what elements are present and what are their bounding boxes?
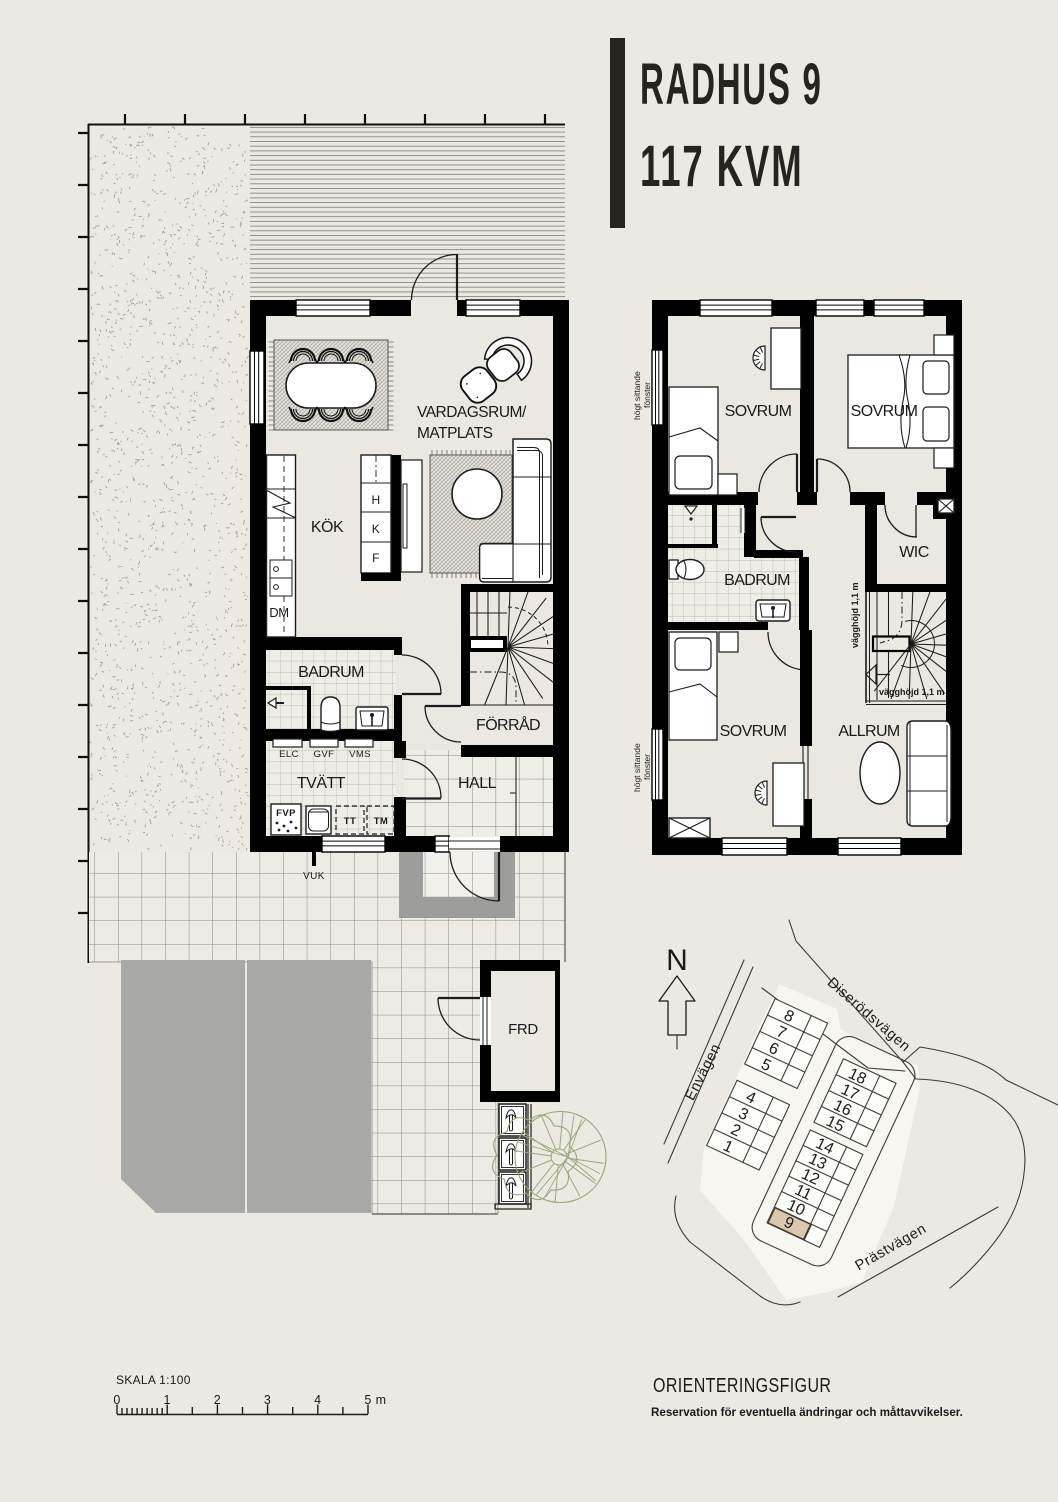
svg-text:SOVRUM: SOVRUM — [851, 403, 918, 420]
svg-text:TT: TT — [344, 816, 356, 827]
svg-text:KÖK: KÖK — [311, 518, 344, 536]
svg-text:RADHUS 9: RADHUS 9 — [640, 52, 823, 117]
svg-text:117 KVM: 117 KVM — [640, 135, 804, 200]
svg-text:SOVRUM: SOVRUM — [720, 723, 787, 740]
svg-text:högt sittande: högt sittande — [632, 371, 642, 420]
svg-text:VARDAGSRUM/: VARDAGSRUM/ — [417, 404, 527, 421]
svg-text:SKALA 1:100: SKALA 1:100 — [116, 1373, 191, 1387]
svg-text:FÖRRÅD: FÖRRÅD — [476, 715, 540, 734]
svg-text:TM: TM — [374, 816, 389, 827]
svg-text:VUK: VUK — [303, 871, 325, 882]
svg-text:ELC: ELC — [279, 749, 299, 760]
svg-text:vägghöjd 1,1 m: vägghöjd 1,1 m — [879, 687, 945, 697]
svg-text:H: H — [371, 493, 380, 507]
svg-text:BADRUM: BADRUM — [724, 572, 790, 589]
svg-text:BADRUM: BADRUM — [298, 664, 364, 681]
svg-text:fönster: fönster — [642, 754, 652, 780]
svg-text:K: K — [372, 522, 380, 536]
svg-text:N: N — [666, 944, 688, 977]
svg-text:WIC: WIC — [899, 544, 929, 561]
svg-text:vägghöjd 1,1 m: vägghöjd 1,1 m — [850, 582, 860, 648]
svg-text:VMS: VMS — [349, 749, 371, 760]
svg-text:MATPLATS: MATPLATS — [417, 425, 493, 442]
svg-text:ALLRUM: ALLRUM — [838, 723, 900, 740]
svg-text:DM: DM — [269, 605, 288, 620]
svg-text:F: F — [372, 551, 380, 565]
svg-text:FRD: FRD — [508, 1021, 538, 1038]
svg-text:ORIENTERINGSFIGUR: ORIENTERINGSFIGUR — [653, 1374, 831, 1396]
svg-text:högt sittande: högt sittande — [632, 743, 642, 792]
svg-text:SOVRUM: SOVRUM — [725, 403, 792, 420]
svg-text:Reservation för eventuella änd: Reservation för eventuella ändringar och… — [651, 1406, 963, 1419]
svg-text:fönster: fönster — [642, 382, 652, 408]
svg-text:GVF: GVF — [314, 749, 335, 760]
svg-text:FVP: FVP — [276, 808, 296, 819]
svg-text:TVÄTT: TVÄTT — [297, 774, 346, 792]
svg-text:m: m — [376, 1393, 387, 1407]
svg-text:HALL: HALL — [458, 775, 497, 792]
